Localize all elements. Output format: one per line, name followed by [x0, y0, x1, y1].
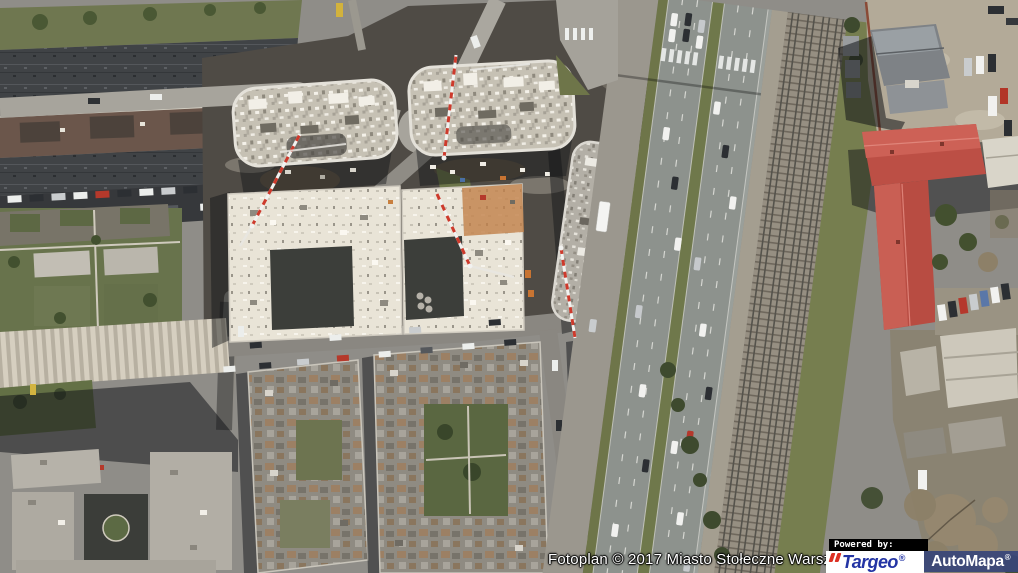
targeo-logo[interactable]: Targeo ®: [826, 551, 924, 573]
construction-building-white-1: [228, 186, 402, 342]
residential-complex-west: [0, 204, 182, 332]
powered-by-label: Powered by:: [829, 539, 928, 551]
targeo-logo-text: Targeo: [842, 553, 898, 571]
road-patch-topcenter: [556, 0, 618, 95]
aerial-map[interactable]: [0, 0, 1018, 573]
white-house-east: [982, 136, 1018, 188]
automapa-logo-text: AutoMapa: [931, 554, 1004, 570]
construction-building-a: [232, 78, 399, 167]
shadow-white-1: [210, 192, 230, 348]
targeo-logo-mark-icon: [830, 553, 839, 562]
apartment-block-south-2: [374, 342, 548, 573]
courtyard-green-south: [424, 404, 508, 516]
targeo-registered-mark: ®: [899, 553, 906, 563]
apartment-block-south-1: [248, 360, 368, 573]
map-viewport: Fotoplan © 2017 Miasto Stołeczne Warszaw…: [0, 0, 1018, 573]
construction-building-b: [408, 60, 576, 156]
map-attribution: Fotoplan © 2017 Miasto Stołeczne Warszaw…: [548, 551, 859, 568]
automapa-registered-mark: ®: [1005, 553, 1011, 562]
automapa-logo[interactable]: AutoMapa ®: [924, 551, 1018, 572]
